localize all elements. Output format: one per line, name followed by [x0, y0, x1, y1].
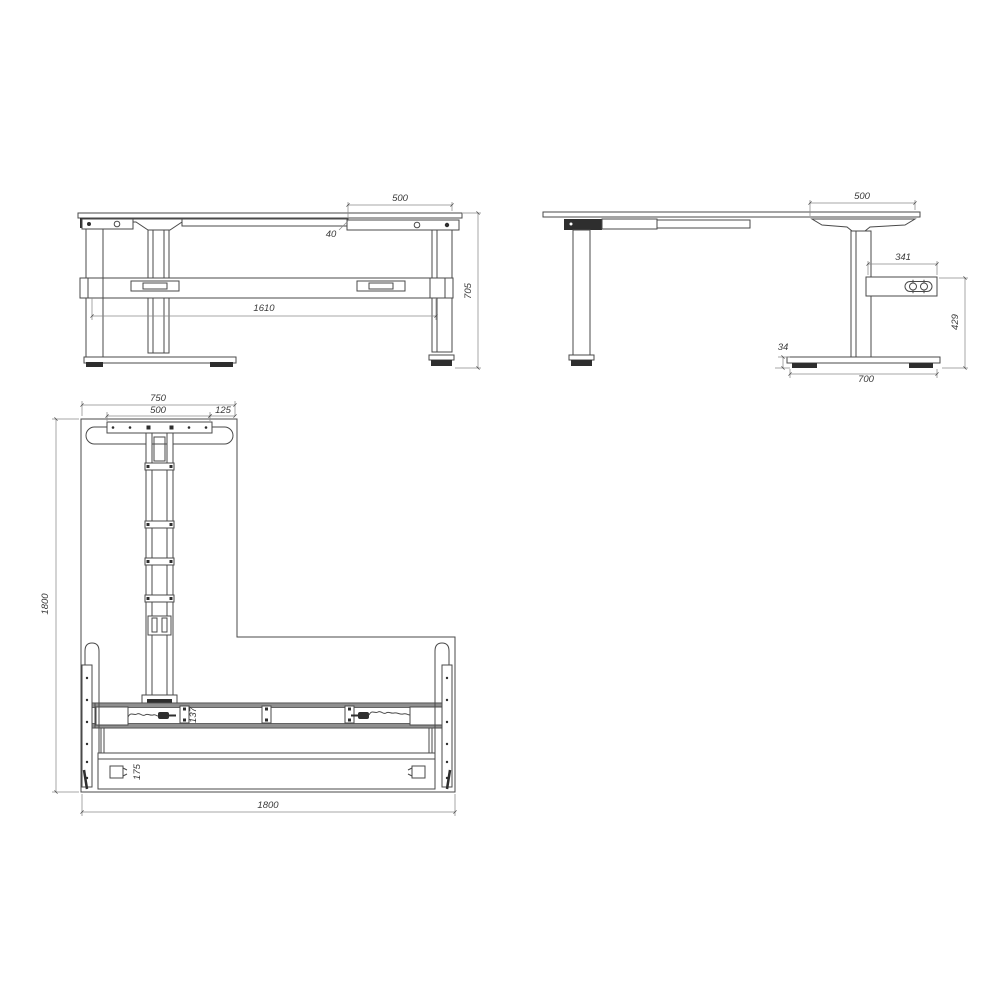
dim-label: 1610	[253, 303, 275, 314]
desktop-outline	[81, 419, 455, 792]
dim-label: 705	[463, 282, 474, 299]
front-view: 500 40 1610 705	[78, 193, 481, 368]
control-box	[131, 281, 179, 291]
under-desk-rail	[564, 219, 915, 231]
screw-icon	[170, 426, 174, 430]
dim-label: 34	[778, 342, 789, 353]
dimension-leg-span: 1610	[92, 298, 436, 320]
dimension-foot-length: 700	[790, 369, 937, 385]
dimension-rail-width: 175	[132, 763, 143, 780]
screw-icon	[147, 426, 151, 430]
desktop	[543, 212, 920, 217]
dimension-beam-width: 137	[188, 706, 199, 723]
dim-label: 500	[854, 191, 871, 202]
control-box	[96, 707, 128, 725]
dim-label: 175	[132, 763, 143, 780]
dimension-width: 1800	[82, 794, 455, 816]
return-foot	[86, 422, 233, 444]
screw-icon	[87, 222, 91, 226]
screw-icon	[910, 283, 917, 290]
technical-drawing: 500 40 1610 705	[0, 0, 1000, 1000]
dim-label: 125	[215, 405, 232, 416]
control-box	[357, 281, 405, 291]
dimension-foot-height: 34	[775, 342, 790, 368]
dim-label: 500	[150, 405, 167, 416]
screw-icon	[112, 426, 115, 429]
plug-icon	[358, 712, 369, 719]
mounting-plate	[107, 422, 212, 433]
control-box	[866, 277, 937, 296]
plug-icon	[158, 712, 169, 719]
dim-label: 700	[858, 374, 875, 385]
dim-label: 1800	[257, 800, 279, 811]
drawing-canvas: 500 40 1610 705	[0, 0, 1000, 1000]
left-foot	[84, 357, 236, 367]
screw-icon	[414, 222, 420, 228]
clamp-icon	[412, 766, 425, 778]
main-beam	[88, 703, 443, 728]
far-leg	[569, 230, 594, 366]
dim-label: 750	[150, 393, 167, 404]
leg-bracket	[812, 219, 915, 231]
dimension-control-box-length: 341	[868, 252, 937, 275]
dimension-edge-offset: 125	[210, 405, 235, 416]
screw-icon	[205, 426, 208, 429]
dim-label: 137	[188, 706, 199, 723]
screw-icon	[114, 221, 120, 227]
foot	[787, 357, 940, 368]
dim-label: 429	[950, 313, 961, 330]
dimension-control-box-height: 429	[939, 278, 968, 368]
screw-icon	[129, 426, 132, 429]
screw-icon	[921, 283, 928, 290]
dim-label: 341	[895, 252, 911, 263]
side-view: 500 341 429 34 700	[543, 191, 968, 385]
dimension-height: 705	[455, 213, 481, 368]
screw-icon	[570, 223, 573, 226]
crossbar	[80, 278, 453, 298]
dim-label: 40	[326, 229, 337, 240]
screw-icon	[445, 223, 449, 227]
clamp-icon	[110, 766, 123, 778]
screw-icon	[188, 426, 191, 429]
top-bracket	[347, 220, 459, 230]
dimension-depth: 1800	[40, 419, 79, 792]
plan-view: 750 500 125 1800 1800 137 175	[40, 393, 455, 816]
dim-label: 1800	[40, 593, 51, 615]
right-foot	[429, 355, 454, 366]
control-box	[410, 707, 442, 725]
under-desk-rail	[82, 219, 459, 230]
dim-label: 500	[392, 193, 409, 204]
